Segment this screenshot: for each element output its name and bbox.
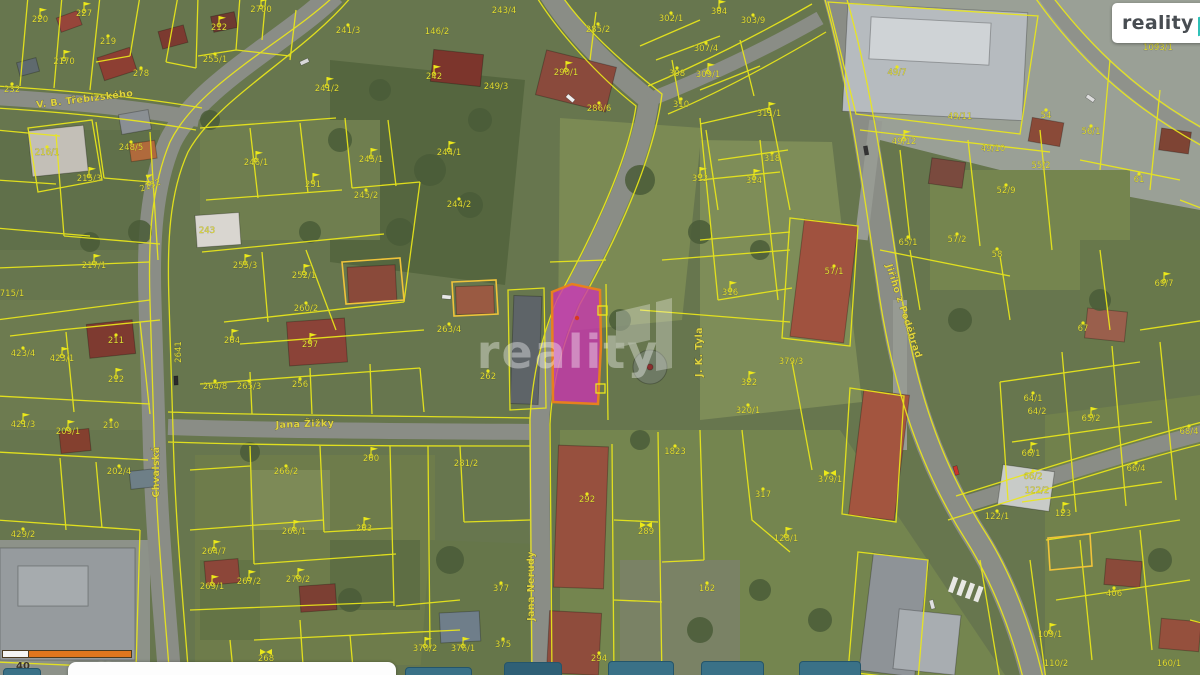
parcel-number: 303/9	[741, 16, 766, 26]
parcel-label: 57/2	[947, 232, 966, 245]
parcel-number: 109/1	[1038, 630, 1063, 640]
parcel-number: 57/2	[947, 235, 966, 245]
parcel-number: 370/2	[413, 644, 438, 654]
parcel-label: 57/1	[824, 264, 843, 277]
parcel-number: 244/2	[447, 200, 472, 210]
parcel-number: 264	[224, 336, 240, 346]
parcel-number: 202/4	[107, 467, 132, 477]
parcel-number: 264/8	[203, 382, 228, 392]
parcel-number: 68/4	[1179, 427, 1198, 437]
parcel-number: 278	[133, 69, 149, 79]
scale-segment-orange	[28, 650, 132, 658]
street-name-label: Jana Žižky	[274, 417, 334, 431]
parcel-label: 265/3	[237, 379, 262, 392]
parcel-label: 318	[764, 151, 780, 164]
parcel-number: 220	[32, 15, 48, 25]
parcel-number: 2700	[250, 5, 272, 15]
street-name-label: Chvalská	[151, 446, 162, 497]
parcel-number: 263/4	[437, 325, 462, 335]
parcel-label: 241/3	[336, 23, 361, 36]
parcel-number: 260/2	[294, 304, 319, 314]
parcel-number: 212	[108, 375, 124, 385]
parcel-label: 61	[1134, 172, 1145, 185]
parcel-number: 267/2	[237, 577, 262, 587]
parcel-number: 61	[1134, 175, 1145, 185]
parcel-number: 286/6	[587, 104, 612, 114]
parcel-number: 64/2	[1027, 407, 1046, 417]
parcel-label: 320/1	[736, 403, 761, 416]
parcel-number: 249/3	[484, 82, 509, 92]
parcel-label: 244/2	[447, 197, 472, 210]
parcel-label: 285/2	[586, 22, 611, 35]
parcel-number: 162	[699, 584, 715, 594]
parcel-label: 292	[579, 492, 595, 505]
map-control-button[interactable]	[701, 661, 764, 675]
parcel-number: 243	[199, 226, 215, 236]
parcel-label: 406	[1106, 586, 1122, 599]
parcel-number: 49/12	[892, 137, 917, 147]
parcel-label: 377	[493, 581, 509, 594]
map-viewport: 2202272192170232278212255/12700241/3241/…	[0, 0, 1200, 675]
parcel-label: 1823	[664, 444, 686, 457]
parcel-label: 248/5	[119, 140, 144, 153]
parcel-number: 122/1	[985, 512, 1010, 522]
parcel-number: 54	[1041, 111, 1052, 121]
parcel-label: 249/3	[484, 82, 509, 92]
parcel-label: 263/4	[437, 322, 462, 335]
parcel-number: 270/2	[286, 575, 311, 585]
parcel-number: 316	[722, 288, 738, 298]
map-control-button[interactable]	[799, 661, 861, 675]
parcel-label: 58	[992, 247, 1003, 260]
parcel-label: 260/2	[294, 301, 319, 314]
parcel-label: 66/4	[1126, 461, 1145, 474]
parcel-label: 64/1	[1023, 391, 1042, 404]
parcel-label: 307/4	[694, 41, 719, 54]
parcel-label: 68/4	[1179, 424, 1198, 437]
parcel-number: 241/3	[336, 26, 361, 36]
parcel-number: 256	[292, 380, 308, 390]
parcel-number: 52/9	[996, 186, 1015, 196]
parcel-number: 242	[426, 72, 442, 82]
logo-brand-text: reality	[1122, 12, 1194, 34]
parcel-label: 202/4	[107, 464, 132, 477]
parcel-number: 69/7	[1154, 279, 1173, 289]
parcel-number: 421/3	[11, 420, 36, 430]
parcel-label: 264/8	[203, 379, 228, 392]
parcel-number: 49/7	[887, 68, 906, 78]
parcel-label: 55/2	[1031, 161, 1050, 171]
parcel-number: 241/2	[315, 84, 340, 94]
parcel-number: 212	[211, 23, 227, 33]
parcel-number: 210	[103, 421, 119, 431]
parcel-number: 289	[638, 527, 654, 537]
parcel-number: 1823	[664, 447, 686, 457]
parcel-label: 110/2	[1044, 659, 1069, 669]
parcel-number: 219	[100, 37, 116, 47]
parcel-number: 55/2	[1031, 161, 1050, 171]
parcel-number: 318	[764, 154, 780, 164]
parcel-number: 227	[76, 9, 92, 19]
parcel-label: 146/2	[425, 27, 450, 37]
parcel-label: 317	[755, 487, 771, 500]
parcel-number: 257	[302, 340, 318, 350]
parcel-label: 302/1	[659, 11, 684, 24]
parcel-label: 122/1	[985, 509, 1010, 522]
parcel-number: 429/2	[11, 530, 36, 540]
parcel-label: 310	[673, 97, 689, 110]
parcel-label: 54	[1041, 108, 1052, 121]
parcel-number: 715/1	[0, 289, 24, 299]
parcel-number: 269/1	[200, 582, 225, 592]
parcel-number: 146/2	[425, 27, 450, 37]
parcel-label: 429/2	[11, 527, 36, 540]
parcel-number: 308	[669, 69, 685, 79]
parcel-number: 66/2	[1023, 472, 1042, 482]
parcel-label: 65/1	[898, 235, 917, 248]
parcel-number: 292	[579, 495, 595, 505]
parcel-number: 252/1	[292, 271, 317, 281]
parcel-number: 379/3	[779, 357, 804, 367]
parcel-label: 423/4	[11, 346, 36, 359]
parcel-label: 294	[591, 651, 607, 664]
search-box[interactable]	[68, 662, 396, 675]
map-control-button[interactable]	[405, 667, 472, 675]
parcel-number: 66/1	[1021, 449, 1040, 459]
parcel-label: 64/2	[1027, 407, 1046, 417]
parcel-label: 715/1	[0, 289, 24, 299]
parcel-number: 122/2	[1025, 486, 1050, 496]
parcel-number: 58	[992, 250, 1003, 260]
parcel-label: 162	[699, 581, 715, 594]
parcel-label: 375	[495, 637, 511, 650]
parcel-label: 211	[108, 333, 124, 346]
parcel-number: 304	[711, 7, 727, 17]
parcel-label: 67	[1078, 321, 1089, 334]
parcel-label: 49/10	[981, 144, 1006, 154]
parcel-number: 266/1	[282, 527, 307, 537]
parcel-number: 209/1	[56, 427, 81, 437]
parcel-number: 375	[495, 640, 511, 650]
parcel-number: 245/2	[354, 191, 379, 201]
parcel-number: 49/10	[981, 144, 1006, 154]
parcel-label: 243	[199, 226, 215, 236]
parcel-number: 285/2	[586, 25, 611, 35]
parcel-number: 317	[755, 490, 771, 500]
parcel-number: 128/1	[774, 534, 799, 544]
parcel-number: 377	[493, 584, 509, 594]
parcel-number: 294	[591, 654, 607, 664]
parcel-label: 308	[669, 66, 685, 79]
parcel-number: 57/1	[824, 267, 843, 277]
parcel-number: 281/2	[454, 459, 479, 469]
parcel-number: 255/1	[203, 55, 228, 65]
parcel-number: 65/1	[898, 238, 917, 248]
parcel-number: 2641	[174, 341, 184, 363]
parcel-label: 379/3	[779, 357, 804, 367]
parcel-label: 219	[100, 34, 116, 47]
parcel-number: 310	[673, 100, 689, 110]
parcel-number: 307/4	[694, 44, 719, 54]
parcel-number: 217/1	[82, 261, 107, 271]
parcel-number: 56/1	[1081, 127, 1100, 137]
parcel-number: 216/1	[35, 148, 60, 158]
parcel-number: 255/3	[233, 261, 258, 271]
parcel-number: 379/1	[818, 475, 843, 485]
parcel-number: 245/1	[359, 155, 384, 165]
parcel-label: 66/2	[1023, 469, 1042, 482]
parcel-label: 216/1	[35, 145, 60, 158]
parcel-number: 311/1	[757, 109, 782, 119]
parcel-label: 286/6	[587, 101, 612, 114]
street-name-label: J. K. Tyla	[694, 327, 705, 378]
parcel-number: 264/7	[202, 547, 227, 557]
parcel-number: 160/1	[1157, 659, 1182, 669]
parcel-label: 232	[4, 82, 20, 95]
parcel-number: 67	[1078, 324, 1089, 334]
parcel-number: 232	[4, 85, 20, 95]
scale-segment-white	[2, 650, 29, 658]
parcel-number: 266/2	[274, 467, 299, 477]
map-control-button[interactable]	[3, 668, 41, 675]
parcel-number: 314	[746, 176, 762, 186]
map-control-button[interactable]	[608, 661, 674, 675]
street-name-label: Jana Nerudy	[526, 551, 537, 622]
cadastral-map-canvas[interactable]: 2202272192170232278212255/12700241/3241/…	[0, 0, 1200, 675]
parcel-label: 255/1	[203, 52, 228, 65]
parcel-number: 211	[108, 336, 124, 346]
parcel-number: 320/1	[736, 406, 761, 416]
parcel-label: 281/2	[454, 459, 479, 469]
parcel-label: 243/4	[492, 6, 517, 16]
parcel-label: 52/9	[996, 183, 1015, 196]
parcel-number: 110/2	[1044, 659, 1069, 669]
parcel-label: 278	[133, 66, 149, 79]
parcel-number: 312	[692, 174, 708, 184]
parcel-number: 309/1	[696, 70, 721, 80]
parcel-number: 64/1	[1023, 394, 1042, 404]
parcel-label: 256	[292, 377, 308, 390]
parcel-number: 260	[363, 454, 379, 464]
parcel-number: 49/11	[948, 112, 973, 122]
parcel-number: 1093/1	[1143, 43, 1173, 53]
parcel-number: 290/1	[554, 68, 579, 78]
parcel-number: 246/1	[244, 158, 269, 168]
parcel-number: 244/1	[437, 148, 462, 158]
parcel-number: 123	[1055, 509, 1071, 519]
parcel-label: 160/1	[1157, 659, 1182, 669]
parcel-number: 423/1	[50, 354, 75, 364]
parcel-number: 65/2	[1081, 414, 1100, 424]
parcel-label: 49/11	[948, 112, 973, 122]
parcel-number: 251	[305, 180, 321, 190]
selected-parcel-marker	[575, 316, 579, 320]
parcel-number: 406	[1106, 589, 1122, 599]
parcel-number: 322	[741, 378, 757, 388]
parcel-number: 263	[356, 524, 372, 534]
parcel-number: 243/4	[492, 6, 517, 16]
parcel-number: 302/1	[659, 14, 684, 24]
parcel-label: 210	[103, 418, 119, 431]
parcel-label: 56/1	[1081, 124, 1100, 137]
parcel-number: 2170	[53, 57, 75, 67]
parcel-number: 376/1	[451, 644, 476, 654]
parcel-label: 122/2	[1025, 486, 1050, 496]
parcel-label: 266/2	[274, 464, 299, 477]
reality-logo[interactable]: reality	[1112, 3, 1200, 43]
parcel-label: 2641	[174, 341, 184, 363]
parcel-number: 66/4	[1126, 464, 1145, 474]
parcel-number: 215/3	[77, 174, 102, 184]
map-control-button[interactable]	[504, 662, 562, 675]
parcel-number: 423/4	[11, 349, 36, 359]
parcel-number: 265/3	[237, 382, 262, 392]
parcel-label: 245/2	[354, 188, 379, 201]
parcel-label: 303/9	[741, 13, 766, 26]
parcel-number: 248/5	[119, 143, 144, 153]
parcel-label: 49/7	[887, 65, 906, 78]
